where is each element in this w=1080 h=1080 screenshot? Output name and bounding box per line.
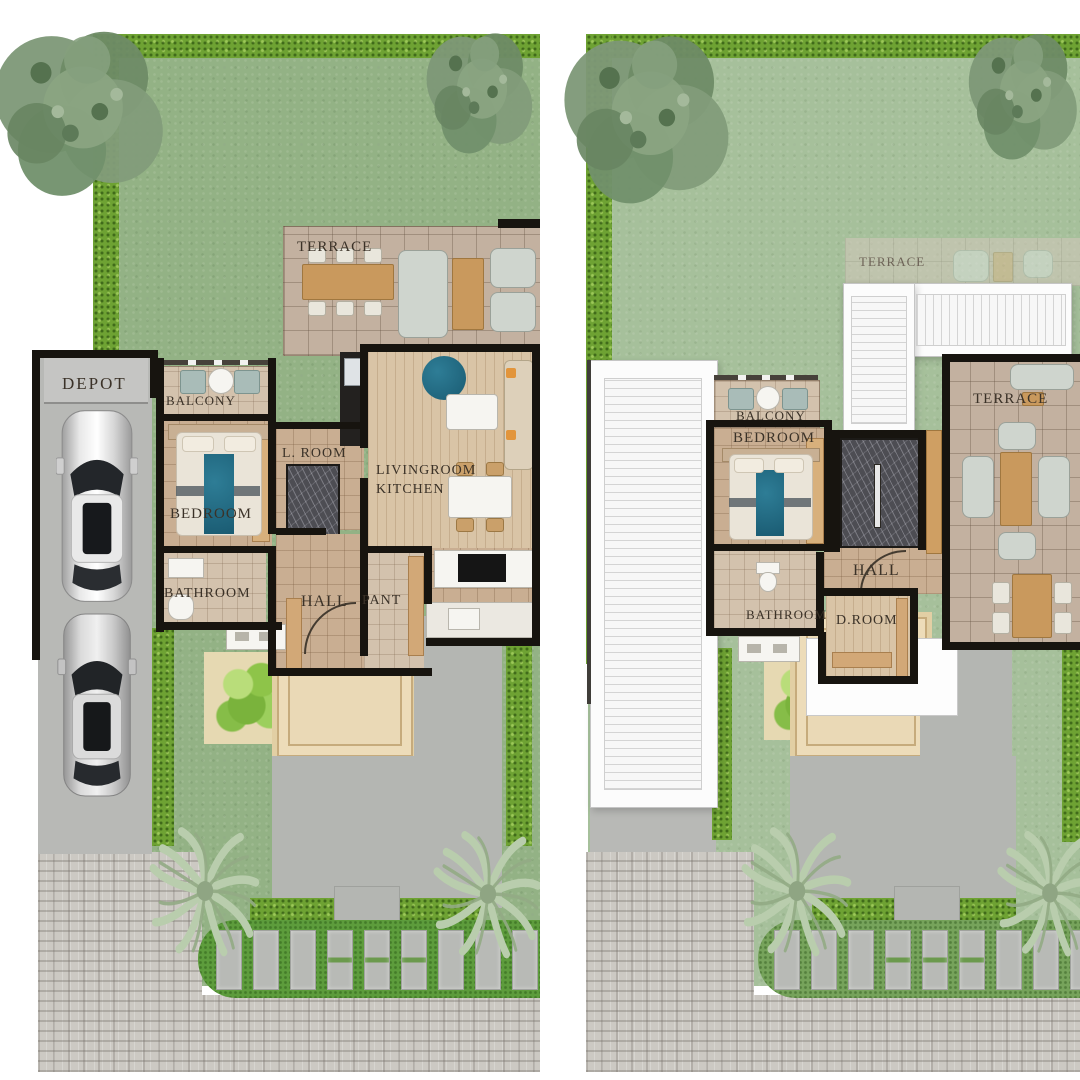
wall [364, 546, 430, 553]
wall [910, 592, 918, 684]
dining-chair [486, 518, 504, 532]
rail-post [188, 360, 196, 365]
palm-tree [994, 824, 1080, 962]
label-terrace-front: TERRACE [973, 391, 1048, 408]
tree-canopy [0, 8, 188, 224]
roof-hatch [916, 294, 1066, 346]
outdoor-sofa [962, 456, 994, 518]
tree-canopy [416, 16, 540, 174]
label-bathroom: BATHROOM [164, 586, 251, 602]
shower-marble [286, 464, 340, 536]
pillow [734, 458, 764, 473]
rail-post [762, 375, 770, 380]
dining-table [448, 476, 512, 518]
fixture-glyph [747, 644, 761, 653]
wall [818, 676, 918, 684]
wall [706, 628, 816, 636]
cobblestone-paving [586, 995, 1080, 1072]
stepping-stone [959, 930, 985, 990]
cobblestone-paving [38, 995, 540, 1072]
label-l-room: L. ROOM [282, 446, 347, 462]
coffee-table [1000, 452, 1032, 526]
stepping-stone [364, 930, 390, 990]
cabinet [832, 652, 892, 668]
pillow [224, 436, 256, 452]
dining-chair [308, 301, 326, 316]
door-leaf [286, 598, 302, 670]
car-top-view [56, 408, 138, 604]
fixture-box [738, 636, 800, 662]
roof-hatch [604, 378, 702, 790]
balcony-chair [728, 388, 754, 410]
label-hall: HALL [301, 593, 348, 611]
bench [926, 430, 942, 554]
label-terrace-rear: TERRACE [859, 254, 925, 270]
label-kitchen: KITCHEN [376, 482, 444, 498]
outdoor-chair [998, 532, 1036, 560]
outdoor-chair [490, 292, 536, 332]
sofa-pillow [506, 430, 516, 440]
balcony-chair [180, 370, 206, 394]
ground-floor-plan: TERRACE DEPOT BALCONY BEDROOM L. ROOM LI… [0, 0, 540, 1080]
stairwell [840, 438, 924, 548]
palm-tree [430, 824, 540, 964]
label-bedroom: BEDROOM [733, 430, 815, 447]
bed [168, 424, 268, 542]
coffee-table [446, 394, 498, 430]
wall [276, 668, 432, 676]
wall [32, 350, 40, 660]
roof-edge [587, 360, 591, 704]
dining-chair [336, 301, 354, 316]
outdoor-chair [490, 248, 536, 288]
door-leaf [408, 556, 424, 656]
wall [832, 438, 840, 552]
outdoor-sofa [398, 250, 448, 338]
wall [268, 546, 276, 676]
dining-chair [1054, 612, 1072, 634]
stepping-stone [922, 930, 948, 990]
wall [360, 344, 540, 352]
stove [458, 554, 506, 582]
dining-table [1012, 574, 1052, 638]
rail-post [786, 375, 794, 380]
label-d-room: D.ROOM [836, 613, 898, 629]
wall [156, 622, 282, 630]
sink [448, 608, 480, 630]
label-pant: PANT [362, 593, 401, 609]
palm-tree [738, 820, 856, 962]
wall [532, 344, 540, 646]
label-terrace: TERRACE [297, 239, 372, 256]
bathroom-sink [168, 558, 204, 578]
dining-chair [992, 582, 1010, 604]
wall [32, 350, 158, 358]
stepping-stone [327, 930, 353, 990]
label-livingroom: LIVINGROOM [376, 463, 476, 479]
wall [156, 358, 164, 632]
wall [942, 354, 1080, 362]
outdoor-sofa [1010, 364, 1074, 390]
balcony-chair [782, 388, 808, 410]
wall [276, 528, 326, 535]
label-depot: DEPOT [62, 374, 127, 394]
dining-table [302, 264, 394, 300]
door-leaf [896, 598, 908, 678]
fixture-glyph [773, 644, 787, 653]
dining-chair [486, 462, 504, 476]
wall [156, 546, 276, 553]
pillow [774, 458, 804, 473]
upper-floor-plan: TERRACE BALCONY BEDROOM TERRACE HALL BAT… [560, 0, 1080, 1080]
fixture-glyph [235, 632, 249, 641]
stepping-stone [290, 930, 316, 990]
label-hall: HALL [853, 562, 900, 580]
wall [818, 588, 918, 596]
sofa-pillow [506, 368, 516, 378]
wall [942, 642, 1080, 650]
hedge-strip [152, 628, 174, 846]
tree-canopy [560, 12, 753, 232]
stepping-stone [401, 930, 427, 990]
roof-hatch [851, 296, 907, 424]
toilet [759, 572, 777, 592]
wall [918, 430, 926, 550]
hedge-strip [1062, 648, 1080, 842]
wall [268, 358, 276, 420]
wall [832, 430, 926, 438]
tree-canopy [958, 16, 1080, 181]
rail-post [214, 360, 222, 365]
pillow [182, 436, 214, 452]
wall [498, 219, 540, 228]
dining-chair [992, 612, 1010, 634]
stair-rail [874, 464, 881, 528]
hedge-strip [506, 628, 532, 846]
wall [426, 638, 540, 646]
stepping-stone [885, 930, 911, 990]
wall [360, 344, 368, 448]
rail-post [738, 375, 746, 380]
wall [706, 544, 832, 551]
balcony-chair [234, 370, 260, 394]
outdoor-sofa [1038, 456, 1070, 518]
side-table [452, 258, 484, 330]
outdoor-chair [998, 422, 1036, 450]
palm-tree [146, 820, 264, 962]
wall [276, 422, 368, 429]
bed [722, 448, 818, 544]
wall [360, 478, 368, 656]
label-balcony: BALCONY [736, 408, 806, 424]
label-bathroom: BATHROOM [746, 607, 827, 623]
wall [156, 414, 276, 421]
label-balcony: BALCONY [166, 393, 236, 409]
bed-runner [756, 470, 784, 536]
label-bedroom: BEDROOM [170, 506, 252, 523]
wall [424, 546, 432, 604]
car-top-view [56, 612, 138, 798]
kitchen-counter [426, 602, 534, 638]
wall [268, 414, 276, 534]
wall [942, 354, 950, 650]
dining-chair [364, 301, 382, 316]
dining-chair [456, 518, 474, 532]
floor-plans-canvas: TERRACE DEPOT BALCONY BEDROOM L. ROOM LI… [0, 0, 1080, 1080]
balcony-table [208, 368, 234, 394]
balcony-table [756, 386, 780, 410]
rail-post [240, 360, 248, 365]
wall [706, 420, 714, 636]
dining-chair [1054, 582, 1072, 604]
wall [824, 420, 832, 552]
